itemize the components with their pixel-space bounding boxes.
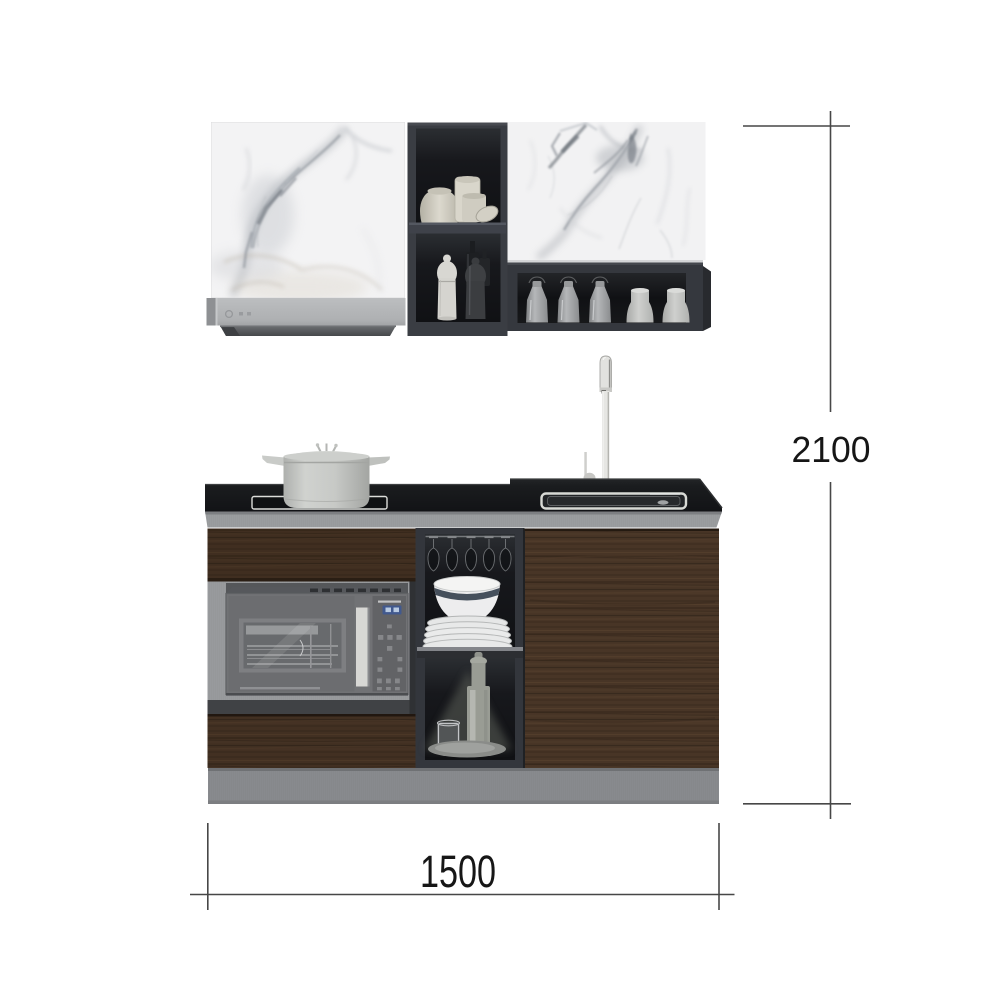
svg-text:2100: 2100 xyxy=(792,429,871,470)
svg-text:1500: 1500 xyxy=(420,846,496,897)
